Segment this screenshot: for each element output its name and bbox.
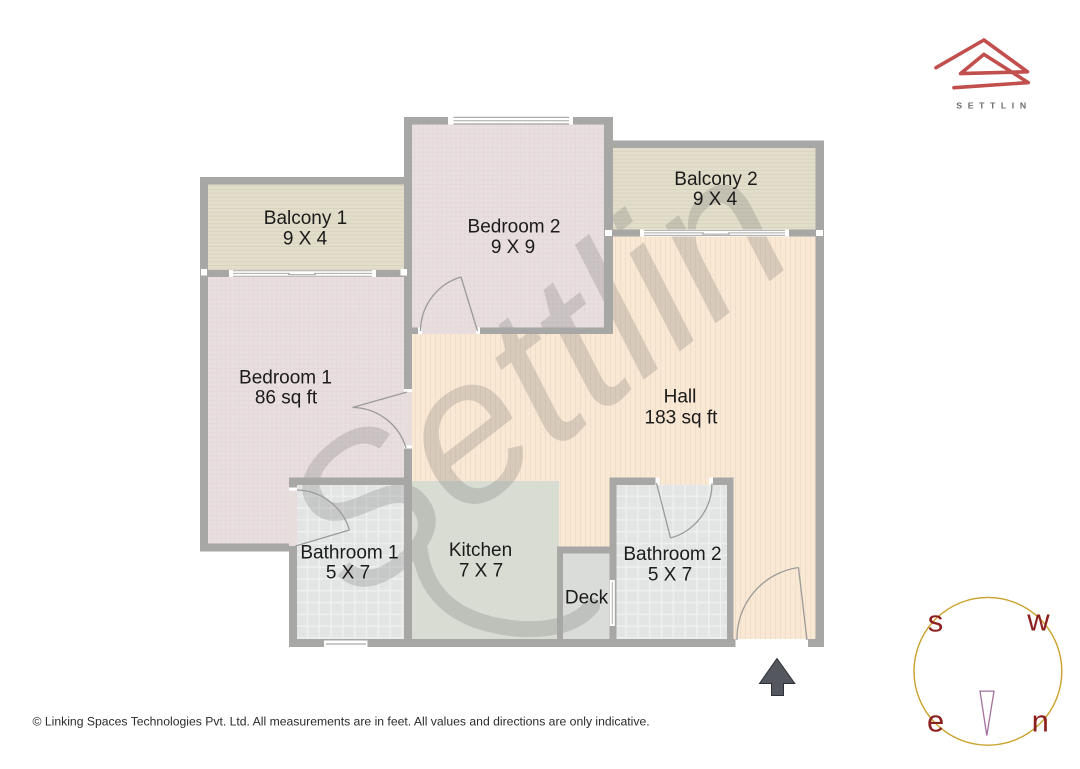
svg-text:7 X 7: 7 X 7: [459, 561, 503, 582]
svg-text:Kitchen: Kitchen: [449, 540, 512, 561]
svg-text:Balcony 2: Balcony 2: [674, 169, 757, 190]
svg-text:Bathroom 2: Bathroom 2: [623, 544, 721, 565]
svg-text:9 X 9: 9 X 9: [491, 237, 535, 258]
svg-text:n: n: [1032, 704, 1049, 739]
svg-text:Balcony 1: Balcony 1: [264, 208, 347, 229]
svg-text:5 X 7: 5 X 7: [326, 563, 370, 584]
svg-text:Deck: Deck: [565, 588, 609, 609]
svg-text:e: e: [927, 704, 944, 739]
svg-text:86 sq ft: 86 sq ft: [255, 388, 318, 409]
svg-text:5 X 7: 5 X 7: [648, 565, 692, 586]
svg-text:9 X 4: 9 X 4: [693, 189, 738, 210]
svg-text:Bedroom 1: Bedroom 1: [239, 368, 332, 389]
svg-text:w: w: [1026, 603, 1050, 638]
svg-text:Bathroom 1: Bathroom 1: [300, 543, 398, 564]
svg-text:SETTLIN: SETTLIN: [956, 100, 1031, 110]
svg-text:© Linking Spaces Technologies: © Linking Spaces Technologies Pvt. Ltd. …: [33, 715, 650, 729]
svg-text:s: s: [928, 604, 944, 639]
svg-text:9 X 4: 9 X 4: [283, 229, 328, 250]
svg-text:183 sq ft: 183 sq ft: [645, 408, 719, 429]
svg-text:Hall: Hall: [664, 387, 697, 408]
svg-text:Bedroom 2: Bedroom 2: [468, 217, 561, 238]
